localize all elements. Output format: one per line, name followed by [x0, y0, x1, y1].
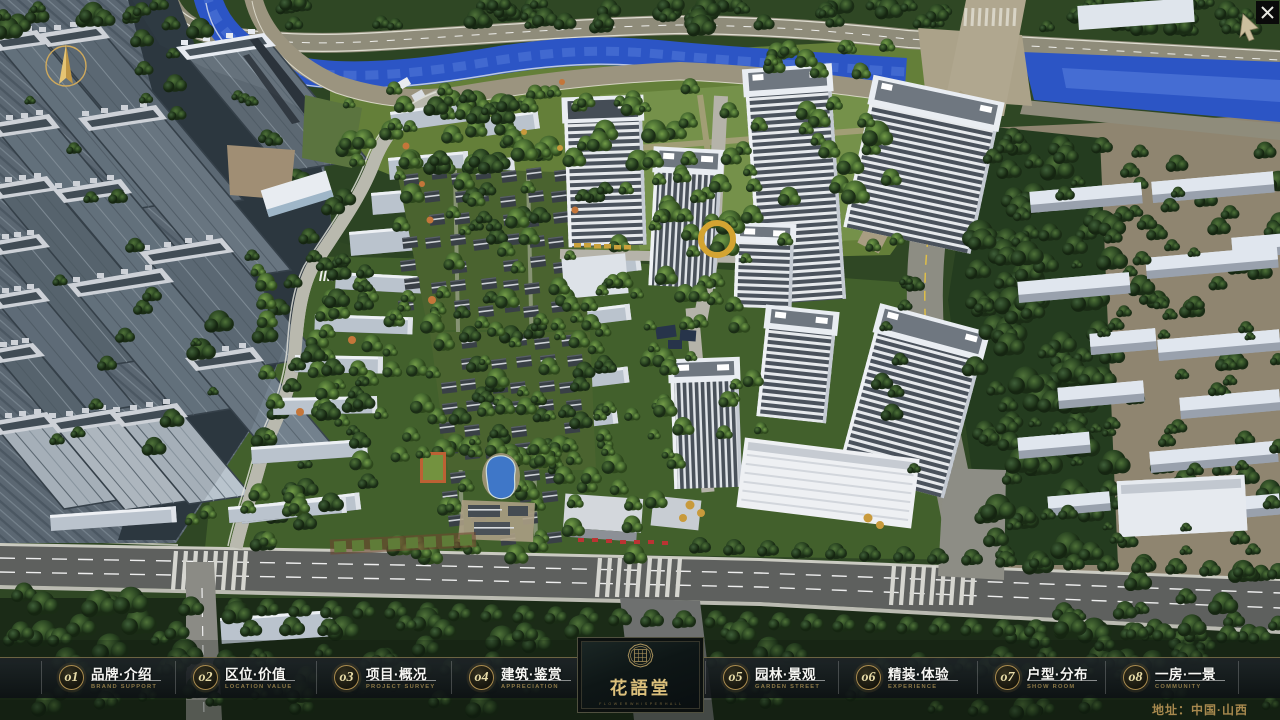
svg-text:花語堂: 花語堂: [610, 678, 672, 698]
svg-text:F L O W E R W H I S P E R H A: F L O W E R W H I S P E R H A L L: [599, 702, 682, 706]
